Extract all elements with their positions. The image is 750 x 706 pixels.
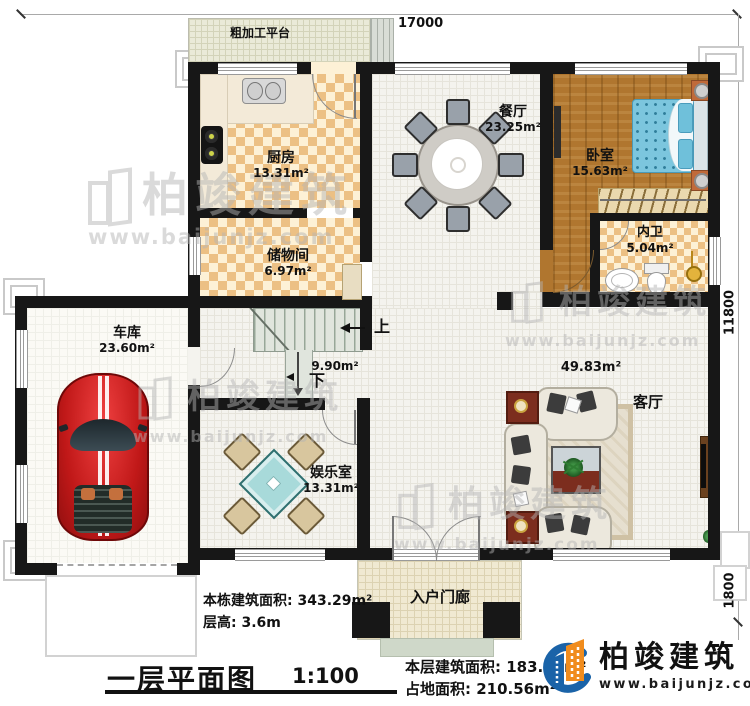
- wall-kitchen-right: [360, 74, 372, 218]
- stairs-down-arrowhead: [293, 388, 303, 396]
- platform-steps: [370, 18, 394, 64]
- closet: [598, 188, 710, 215]
- storage-label: 储物间6.97m²: [264, 248, 311, 278]
- stove-burner-dot: [209, 151, 214, 156]
- dining-chair: [392, 153, 418, 177]
- sofa-cushion: [511, 435, 532, 456]
- bathroom-sink-bowl: [611, 273, 633, 288]
- dining-table-center: [450, 157, 466, 173]
- brand-url: www.baijunjz.com: [599, 677, 750, 692]
- closet-rod: [600, 199, 706, 201]
- side-table-decor: [514, 399, 528, 413]
- entertainment-label: 娱乐室13.31m²: [303, 465, 359, 495]
- wall-entertainment-right: [357, 398, 370, 560]
- dining-chair: [498, 153, 524, 177]
- bed-pillow: [678, 139, 693, 169]
- dim-right-lower-value: 1800: [723, 561, 738, 621]
- brand-name: 柏竣建筑: [599, 643, 750, 673]
- kitchen-sink-basin: [247, 82, 263, 100]
- bedroom-label: 卧室15.63m²: [572, 148, 628, 178]
- title-underline: [105, 690, 397, 694]
- floor-patch: [508, 292, 542, 308]
- porch-step: [380, 638, 494, 657]
- footprint-area-text: 占地面积: 210.56m²: [405, 678, 556, 699]
- sofa-pillow: [513, 491, 530, 508]
- wall-entertainment-top: [188, 398, 325, 410]
- garage-hall-door-opening: [188, 347, 200, 385]
- bed-pillow: [678, 103, 693, 133]
- pillar-mid: [497, 292, 513, 310]
- wall-stairs-right: [360, 296, 372, 350]
- window-garage-left: [16, 330, 28, 388]
- wall-storage-right-upper: [360, 218, 372, 262]
- stairs-down-arrow: [286, 373, 294, 381]
- window-entertainment-bottom: [235, 549, 325, 561]
- storage-door-leaf: [342, 264, 362, 300]
- side-table-decor: [514, 519, 528, 533]
- living-area-label: 49.83m²: [561, 360, 621, 376]
- wall-bedroom-left: [540, 74, 553, 250]
- plan-scale: 1:100: [292, 664, 359, 688]
- floor-plan: 17000 11800 1800: [0, 0, 750, 706]
- bedroom-door-opening: [540, 250, 553, 292]
- stove-burner-dot: [209, 134, 214, 139]
- building-area-text: 本栋建筑面积: 343.29m²: [203, 590, 372, 610]
- window-bathroom-right: [709, 237, 721, 285]
- window-bedroom-top: [575, 63, 687, 75]
- car: [57, 373, 149, 541]
- toilet-brush: [686, 266, 702, 282]
- bedroom-tv: [554, 106, 561, 158]
- stairs-down-arrow-line: [297, 352, 299, 390]
- platform-label: 粗加工平台: [230, 27, 290, 41]
- wall-garage-bottom-left: [15, 563, 57, 575]
- rough-work-platform: [188, 18, 372, 64]
- sofa-cushion: [511, 465, 531, 485]
- kitchen-sink-basin: [265, 82, 281, 100]
- stairs-up-label: 上: [374, 318, 390, 336]
- floor-height-text: 层高: 3.6m: [203, 612, 281, 632]
- entrance-door-leaf: [478, 516, 480, 560]
- window-garage-left: [16, 465, 28, 523]
- garage-label: 车库23.60m²: [99, 325, 155, 355]
- wall-right: [708, 62, 720, 560]
- stairs-up-arrow-tail: [349, 327, 365, 329]
- dining-chair: [446, 99, 470, 125]
- porch-pillar-right: [483, 602, 520, 638]
- door-leaf-entertainment: [354, 410, 356, 444]
- window-living-bottom: [553, 549, 670, 561]
- brand-logo: 柏竣建筑 www.baijunjz.com: [537, 637, 750, 697]
- living-label: 客厅: [633, 394, 663, 411]
- dim-top-value: 17000: [398, 16, 443, 31]
- entrance-door-leaf: [392, 516, 394, 560]
- wall-kitchen-storage-a: [200, 208, 307, 218]
- garage-door-dashed-line: [57, 564, 177, 566]
- wall-bathroom-top: [590, 213, 712, 221]
- kitchen-label: 厨房13.31m²: [253, 150, 309, 180]
- living-tv: [701, 444, 706, 488]
- brand-logo-icon: [537, 637, 591, 697]
- wall-kitchen-storage-b: [353, 208, 372, 218]
- porch-label: 入户门廊: [410, 589, 470, 606]
- bathroom-label: 内卫5.04m²: [626, 226, 673, 255]
- wall-left-lower: [188, 296, 200, 575]
- car-seat: [81, 488, 95, 500]
- dining-label: 餐厅23.25m²: [485, 104, 541, 134]
- driveway: [45, 575, 197, 657]
- stairs-down-label: 下: [309, 372, 325, 390]
- watermark-logo-icon: [88, 168, 132, 222]
- kitchen-platform-door-opening: [311, 62, 356, 74]
- dim-line-top: [20, 14, 738, 15]
- car-seat: [109, 488, 123, 500]
- wall-mid-horizontal: [542, 292, 720, 307]
- dining-chair: [446, 206, 470, 232]
- dim-right-upper-value: 11800: [723, 283, 738, 343]
- door-leaf-kitchen: [354, 74, 356, 118]
- wall-garage-top: [15, 296, 200, 308]
- sofa-cushion: [545, 513, 565, 534]
- brand-text-block: 柏竣建筑 www.baijunjz.com: [599, 643, 750, 692]
- window-kitchen-top: [218, 63, 297, 75]
- window-kitchen-left: [189, 237, 201, 275]
- window-dining-top: [395, 63, 510, 75]
